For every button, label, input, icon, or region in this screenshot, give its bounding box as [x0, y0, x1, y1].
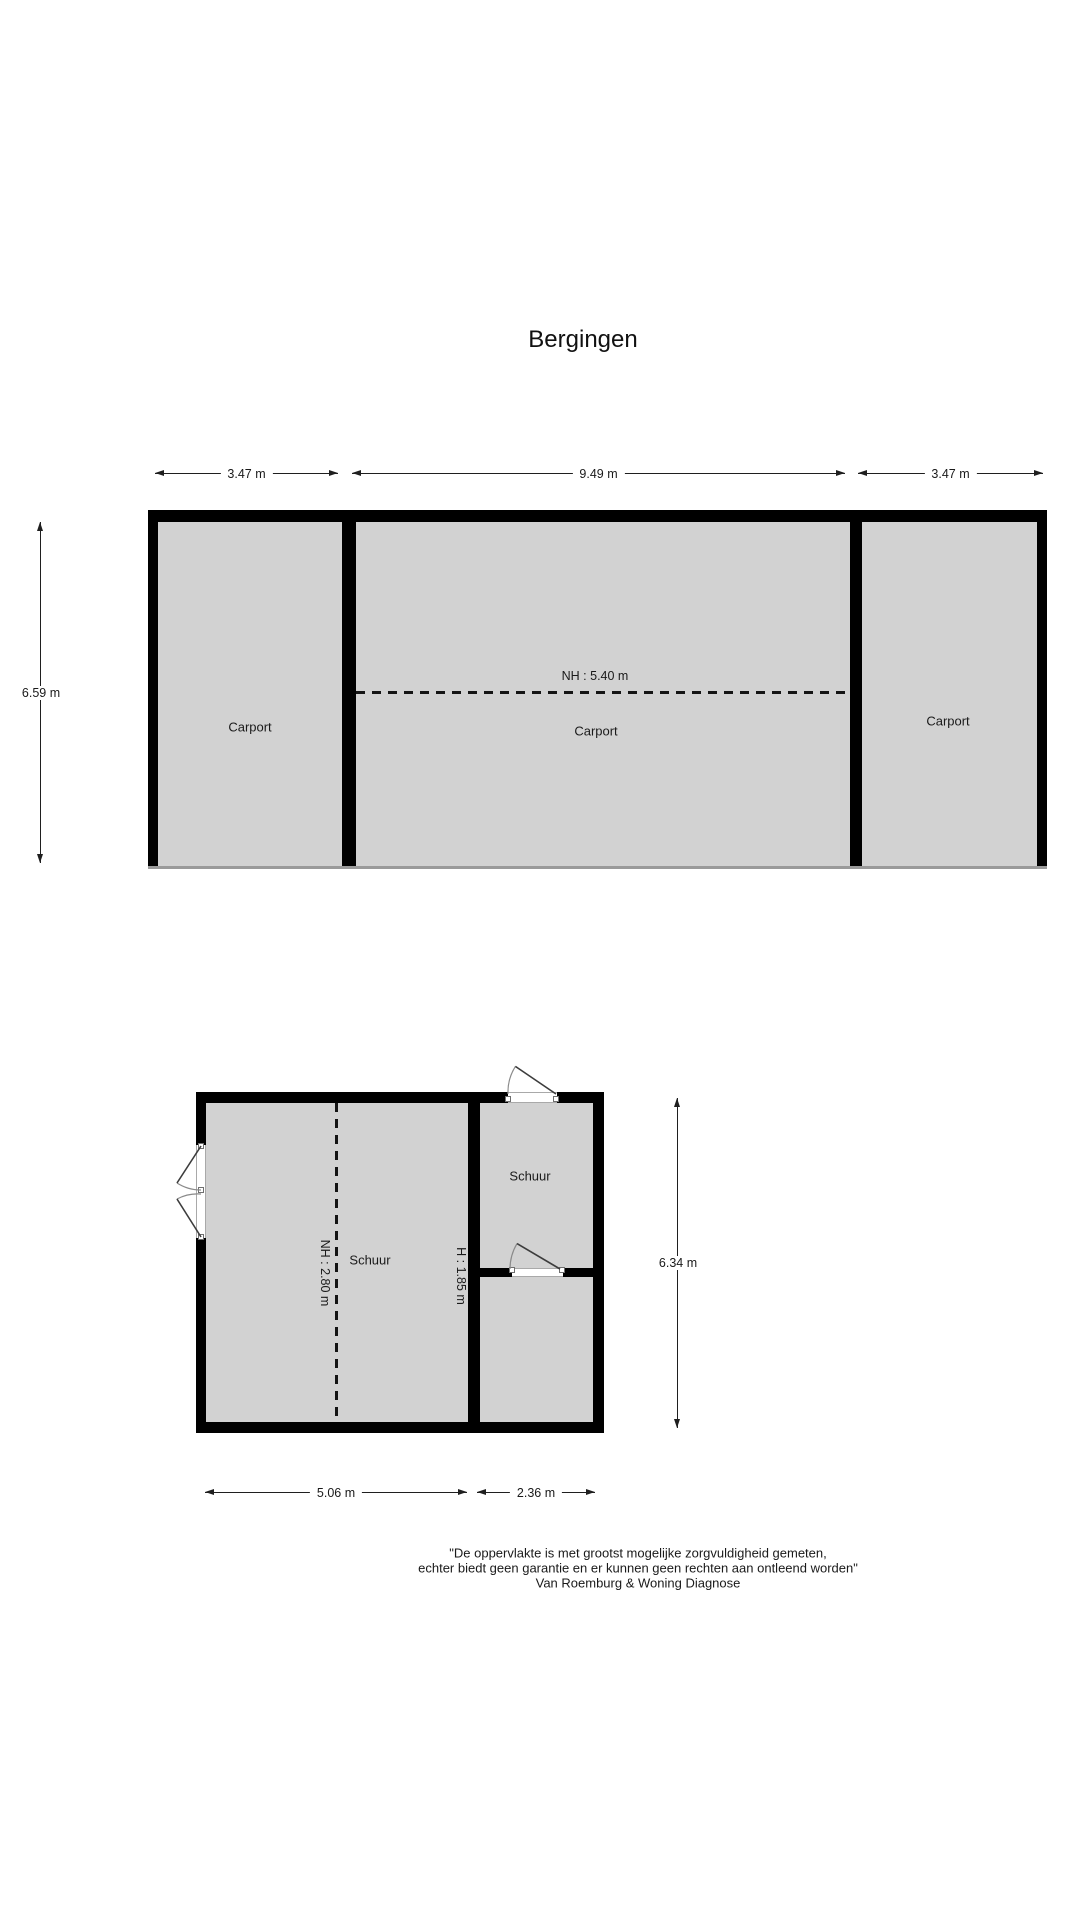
carport-interior-wall-1 — [342, 510, 356, 867]
shed-room-top-right-label: Schuur — [509, 1169, 550, 1184]
carport-room-right-label: Carport — [926, 714, 969, 729]
carport-building: NH : 5.40 m Carport Carport Carport — [148, 510, 1047, 870]
shed-ceiling-dashed-line — [335, 1103, 338, 1421]
carport-ceiling-dashed-line — [356, 691, 850, 694]
disclaimer-line-3: Van Roemburg & Woning Diagnose — [418, 1576, 858, 1591]
carport-left-wall — [148, 510, 158, 867]
carport-room-middle-fill — [356, 522, 850, 867]
shed-left-upper-door-swing — [172, 1142, 208, 1194]
carport-top-wall — [148, 510, 1047, 522]
dim-carport-left-width-label: 3.47 m — [220, 467, 272, 481]
dim-shed-depth-label: 6.34 m — [652, 1256, 704, 1270]
carport-right-wall — [1037, 510, 1047, 867]
dim-shed-right-width: 2.36 m — [477, 1492, 595, 1493]
carport-room-middle-label: Carport — [574, 724, 617, 739]
page-title: Bergingen — [528, 326, 637, 354]
shed-left-lower-door-swing — [172, 1192, 208, 1242]
carport-room-left-label: Carport — [228, 720, 271, 735]
shed-top-door-swing — [505, 1060, 567, 1105]
carport-room-right-fill — [862, 522, 1037, 867]
disclaimer-line-1: "De oppervlakte is met grootst mogelijke… — [418, 1546, 858, 1561]
shed-ceiling-height-label: NH : 2.80 m — [318, 1240, 332, 1307]
dim-shed-right-width-label: 2.36 m — [510, 1486, 562, 1500]
carport-ceiling-height-label: NH : 5.40 m — [562, 669, 629, 683]
dim-shed-left-width-label: 5.06 m — [310, 1486, 362, 1500]
disclaimer-text: "De oppervlakte is met grootst mogelijke… — [418, 1546, 858, 1591]
dim-carport-depth: 6.59 m — [40, 522, 41, 863]
shed-middle-door-swing — [505, 1240, 570, 1274]
shed-interior-vertical-wall — [468, 1092, 480, 1433]
dim-shed-left-width: 5.06 m — [205, 1492, 467, 1493]
carport-interior-wall-2 — [850, 510, 862, 867]
carport-open-edge — [148, 866, 1047, 869]
dim-shed-depth: 6.34 m — [677, 1098, 678, 1428]
carport-room-left-fill — [158, 522, 342, 867]
shed-bottom-wall — [196, 1422, 604, 1433]
shed-height-label: H : 1.85 m — [454, 1247, 468, 1305]
floorplan-page: Bergingen 3.47 m 9.49 m 3.47 m 6.59 m NH… — [0, 0, 1080, 1920]
dim-carport-right-width-label: 3.47 m — [924, 467, 976, 481]
dim-carport-right-width: 3.47 m — [858, 473, 1043, 474]
dim-carport-middle-width: 9.49 m — [352, 473, 845, 474]
dim-carport-middle-width-label: 9.49 m — [572, 467, 624, 481]
dim-carport-left-width: 3.47 m — [155, 473, 338, 474]
disclaimer-line-2: echter biedt geen garantie en er kunnen … — [418, 1561, 858, 1576]
shed-room-left-label: Schuur — [349, 1253, 390, 1268]
shed-right-wall — [593, 1092, 604, 1433]
shed-room-bottom-right-fill — [480, 1277, 593, 1422]
dim-carport-depth-label: 6.59 m — [15, 686, 67, 700]
